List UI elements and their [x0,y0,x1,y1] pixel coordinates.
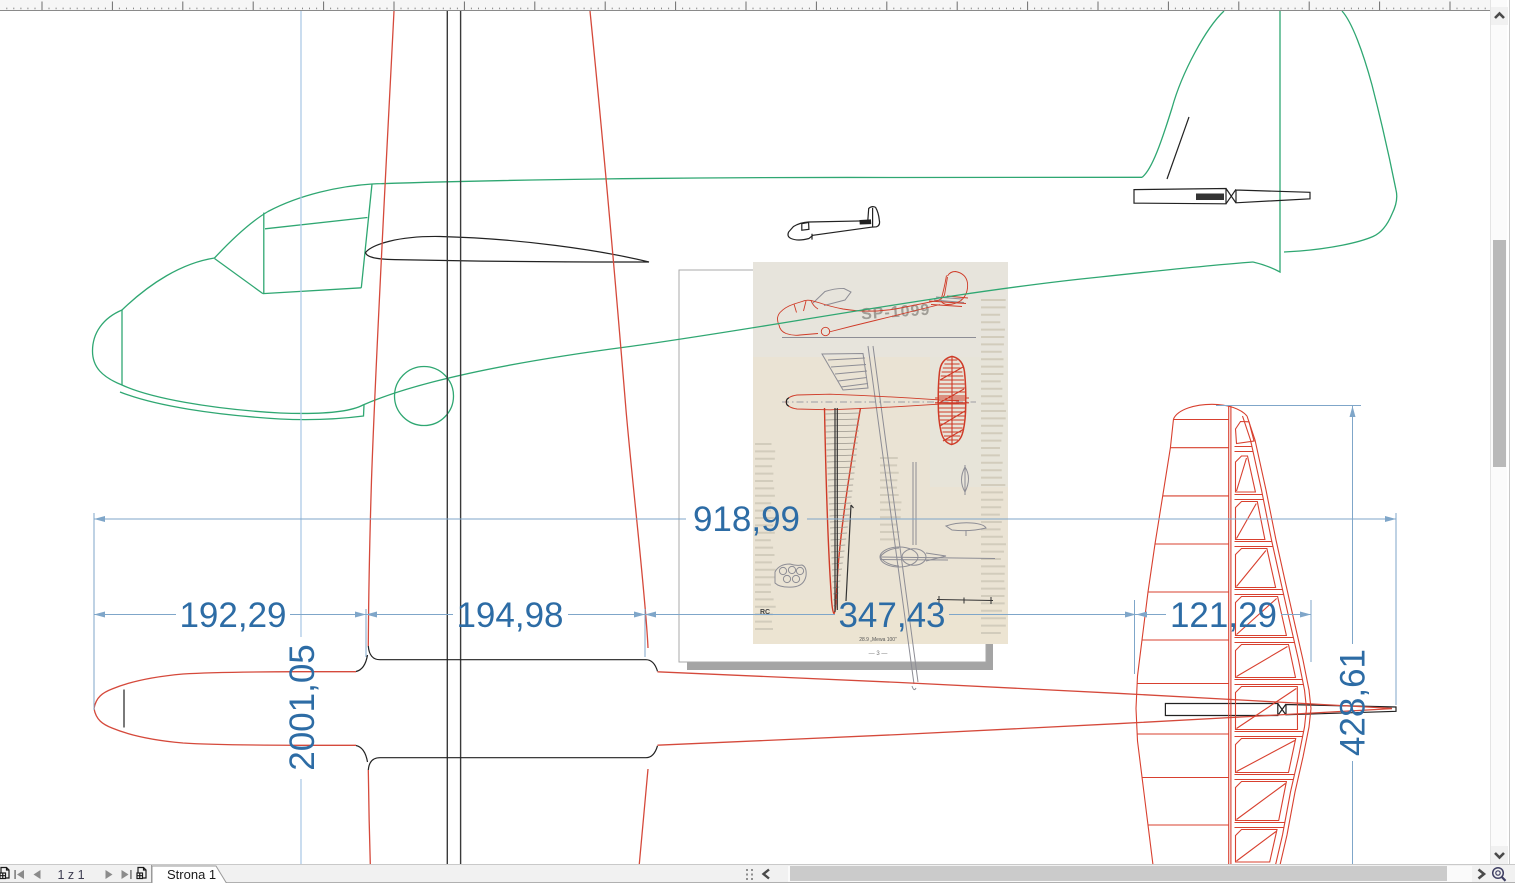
svg-text:194,98: 194,98 [456,596,563,635]
svg-text:Strona 1: Strona 1 [167,867,216,882]
svg-text:— 3 —: — 3 — [869,651,888,657]
svg-text:918,99: 918,99 [693,500,800,539]
svg-text:192,29: 192,29 [179,596,286,635]
svg-text:428,61: 428,61 [1334,649,1373,756]
svg-text:1 z 1: 1 z 1 [57,868,84,882]
svg-text:121,29: 121,29 [1170,596,1277,635]
svg-text:347,43: 347,43 [838,596,945,635]
svg-text:2001,05: 2001,05 [283,644,322,771]
svg-text:28.9 „Mewa 100”: 28.9 „Mewa 100” [859,637,897,643]
